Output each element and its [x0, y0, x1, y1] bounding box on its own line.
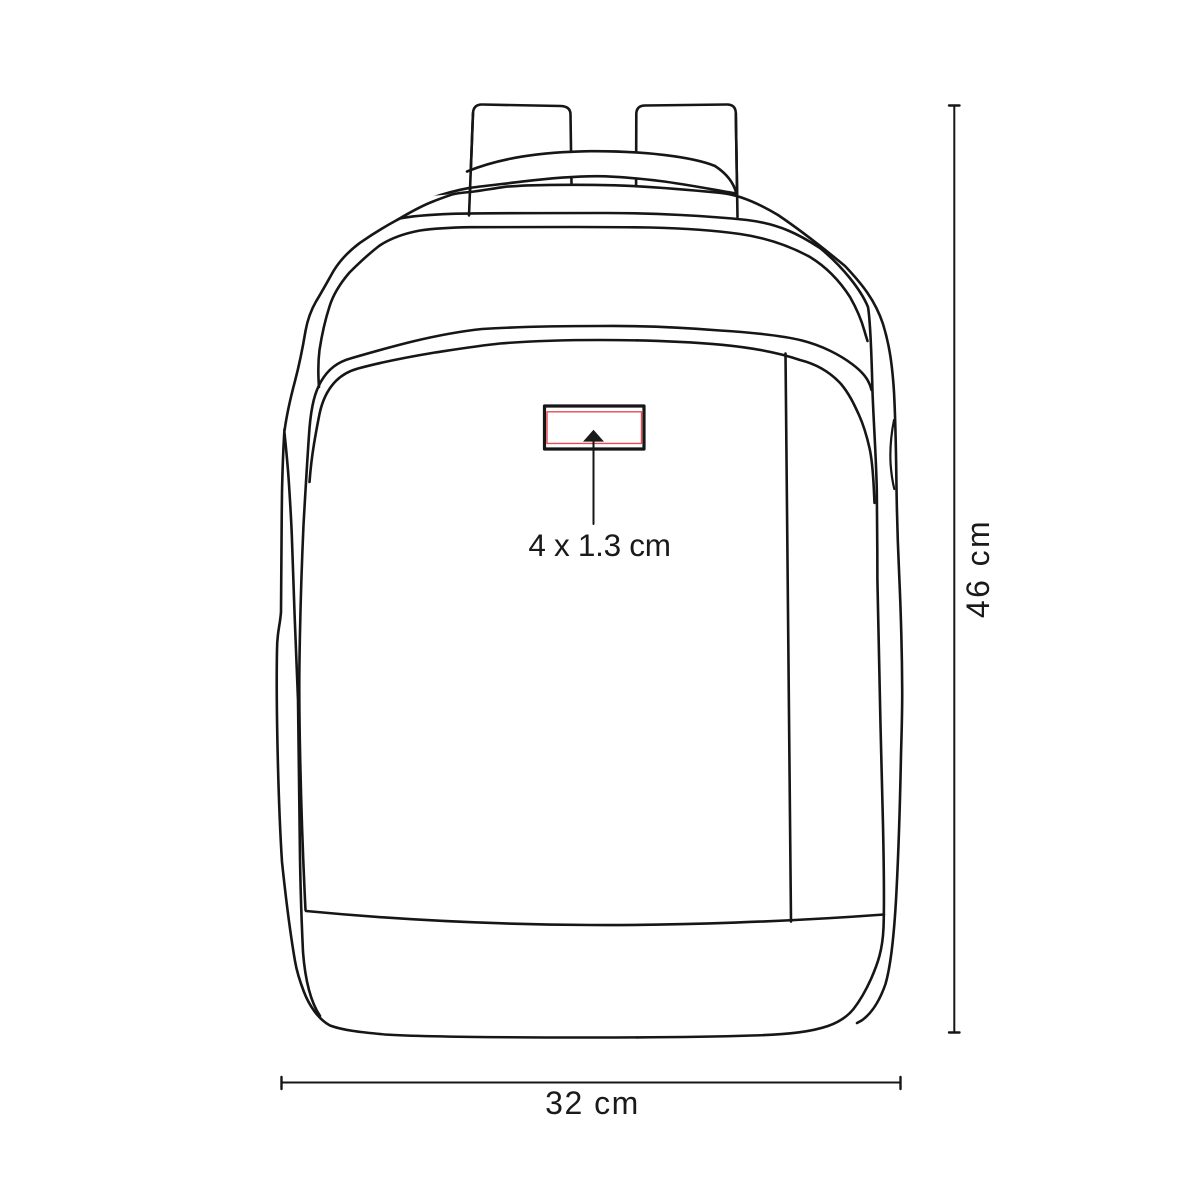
- svg-text:32 cm: 32 cm: [545, 1085, 640, 1121]
- svg-text:46 cm: 46 cm: [960, 519, 996, 618]
- svg-text:4 x 1.3 cm: 4 x 1.3 cm: [528, 527, 670, 563]
